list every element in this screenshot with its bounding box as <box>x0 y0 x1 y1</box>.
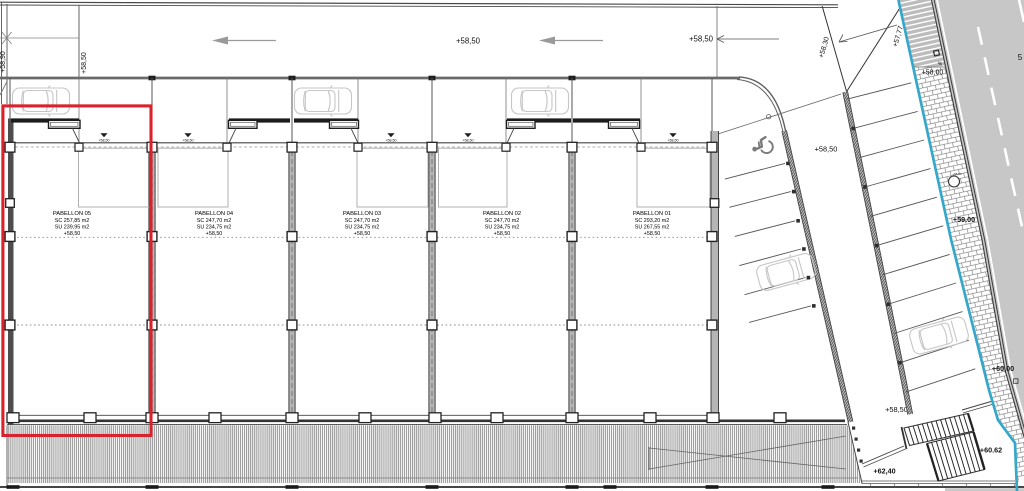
svg-text:%: % <box>938 62 943 68</box>
svg-text:+58,50: +58,50 <box>667 139 678 143</box>
svg-text:SC 247,70 m2: SC 247,70 m2 <box>345 218 379 224</box>
svg-text:+58,00: +58,00 <box>952 172 962 176</box>
svg-text:+58,50: +58,50 <box>462 139 473 143</box>
svg-text:+58,90: +58,90 <box>0 51 7 73</box>
svg-text:5: 5 <box>1018 53 1023 62</box>
svg-text:+58,50: +58,50 <box>689 35 714 44</box>
svg-text:+58,50: +58,50 <box>644 231 661 237</box>
svg-text:+60.62: +60.62 <box>980 446 1002 455</box>
svg-text:SU 239,95 m2: SU 239,95 m2 <box>55 224 89 230</box>
svg-text:SU 267,55 m2: SU 267,55 m2 <box>635 224 669 230</box>
svg-text:PABELLON 05: PABELLON 05 <box>53 211 91 217</box>
svg-text:+58,50: +58,50 <box>64 231 81 237</box>
svg-text:SC 247,70 m2: SC 247,70 m2 <box>197 218 231 224</box>
svg-text:SU 234,75 m2: SU 234,75 m2 <box>485 224 519 230</box>
svg-text:+58,00: +58,00 <box>922 70 944 77</box>
svg-text:+58,50: +58,50 <box>456 37 481 46</box>
svg-text:PABELLON 03: PABELLON 03 <box>343 211 381 217</box>
svg-text:PABELLON 04: PABELLON 04 <box>195 211 234 217</box>
svg-text:SU 234,75 m2: SU 234,75 m2 <box>345 224 379 230</box>
svg-text:+58,50: +58,50 <box>815 145 838 154</box>
svg-text:SU 234,75 m2: SU 234,75 m2 <box>197 224 231 230</box>
svg-text:SC 247,70 m2: SC 247,70 m2 <box>485 218 519 224</box>
svg-text:PABELLON 02: PABELLON 02 <box>483 211 521 217</box>
svg-text:+58,50: +58,50 <box>885 405 908 414</box>
svg-text:+62,40: +62,40 <box>873 467 895 476</box>
svg-text:+58,50: +58,50 <box>182 139 193 143</box>
svg-text:PABELLON 01: PABELLON 01 <box>633 211 671 217</box>
svg-text:+58,50: +58,50 <box>206 231 223 237</box>
svg-text:+58,50: +58,50 <box>98 139 109 143</box>
svg-text:+58,50: +58,50 <box>494 231 511 237</box>
svg-text:+58,50: +58,50 <box>354 231 371 237</box>
svg-text:+60,00: +60,00 <box>992 364 1014 373</box>
svg-text:+59.00: +59.00 <box>953 215 975 224</box>
svg-text:+58,50: +58,50 <box>385 139 396 143</box>
svg-text:SC 257,85 m2: SC 257,85 m2 <box>55 218 89 224</box>
svg-text:SC 293,20 m2: SC 293,20 m2 <box>635 218 669 224</box>
svg-text:+58,50: +58,50 <box>81 52 88 74</box>
